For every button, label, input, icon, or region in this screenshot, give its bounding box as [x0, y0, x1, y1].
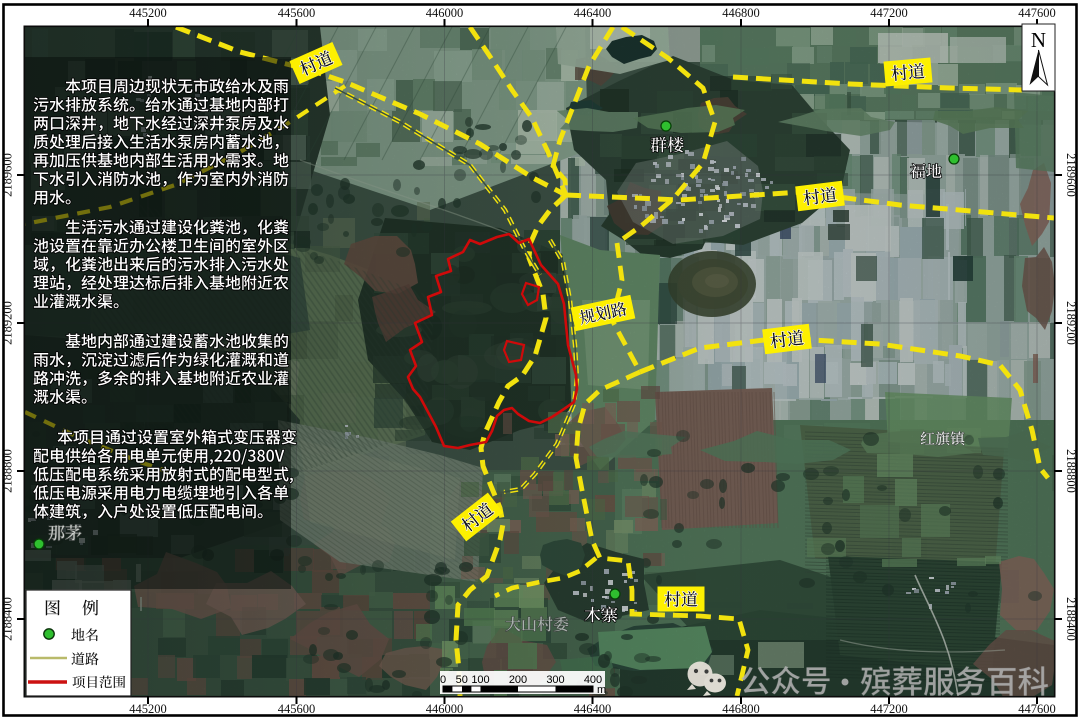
svg-text:2189200: 2189200 — [1064, 301, 1078, 345]
svg-text:2188400: 2188400 — [1064, 597, 1078, 641]
svg-text:2189600: 2189600 — [1064, 153, 1078, 197]
svg-text:446400: 446400 — [574, 6, 612, 20]
svg-text:447200: 447200 — [870, 6, 908, 20]
svg-text:446800: 446800 — [722, 702, 760, 716]
svg-text:446000: 446000 — [426, 6, 464, 20]
svg-text:445600: 445600 — [278, 6, 316, 20]
svg-text:N: N — [1031, 28, 1046, 52]
svg-text:445600: 445600 — [278, 702, 316, 716]
svg-text:0: 0 — [440, 674, 446, 686]
svg-text:447600: 447600 — [1018, 702, 1056, 716]
svg-text:2188800: 2188800 — [1064, 449, 1078, 493]
svg-text:50: 50 — [456, 674, 468, 686]
svg-text:446000: 446000 — [426, 702, 464, 716]
svg-text:300: 300 — [546, 674, 564, 686]
svg-text:446800: 446800 — [722, 6, 760, 20]
svg-text:2189200: 2189200 — [1, 301, 15, 345]
svg-text:445200: 445200 — [129, 6, 167, 20]
svg-text:2188400: 2188400 — [1, 597, 15, 641]
svg-text:445200: 445200 — [129, 702, 167, 716]
svg-text:2188800: 2188800 — [1, 449, 15, 493]
svg-text:2189600: 2189600 — [1, 153, 15, 197]
svg-text:200: 200 — [509, 674, 527, 686]
svg-text:m: m — [597, 684, 606, 696]
svg-text:447600: 447600 — [1018, 6, 1056, 20]
svg-text:100: 100 — [471, 674, 489, 686]
svg-text:447200: 447200 — [870, 702, 908, 716]
svg-text:446400: 446400 — [574, 702, 612, 716]
